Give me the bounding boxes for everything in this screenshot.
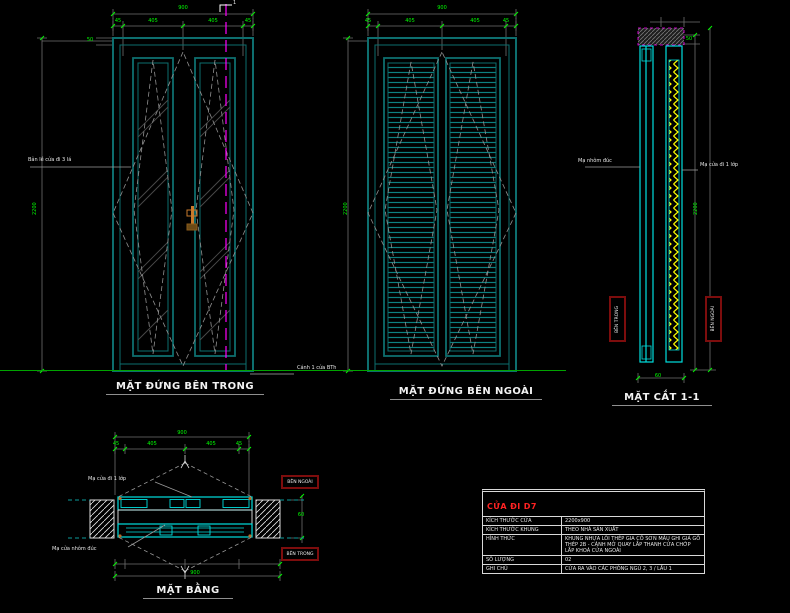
elevation-inside-linework: [0, 0, 320, 400]
dim-right: 45: [496, 18, 516, 24]
table-row: HÌNH THỨC KHUNG NHỰA LÕI THÉP GIA CỐ SƠN…: [483, 535, 704, 556]
frame-profile-left: [640, 46, 653, 362]
spec-value: KHUNG NHỰA LÕI THÉP GIA CỐ SƠN MÀU GHI G…: [562, 535, 704, 555]
spec-value: CỬA RA VÀO CÁC PHÒNG NGỦ 2, 3 / LẦU 1: [562, 565, 704, 573]
section-mark-number: 1: [233, 0, 236, 6]
dim-right: 45: [230, 441, 248, 447]
swing-lines: [118, 463, 252, 571]
dim-thickness: 60: [646, 373, 670, 379]
dim-height: 2200: [343, 191, 349, 215]
plan-label-inside: BÊN TRONG: [281, 547, 319, 561]
dim-right: 45: [238, 18, 258, 24]
plan-label-outside: BÊN NGOÀI: [281, 475, 319, 489]
door-spec-table: CỬA ĐI D7 KÍCH THƯỚC CỬA 2200x900 KÍCH T…: [482, 489, 705, 574]
elevation-outside-linework: [330, 0, 570, 400]
dim-leaf2: 405: [198, 18, 228, 24]
dim-height: 2200: [693, 191, 699, 215]
spec-table-title: CỬA ĐI D7: [487, 502, 537, 511]
dim-head: 50: [682, 36, 696, 42]
dimension-ticks: [40, 12, 255, 373]
dim-total-width: 900: [113, 5, 253, 11]
dim-left: 45: [358, 18, 378, 24]
wall-right: [256, 500, 280, 538]
plan-note-top: Mạ cửa đi 1 lớp: [88, 476, 126, 482]
dim-total-width: 900: [368, 5, 516, 11]
dim-left: 45: [108, 18, 128, 24]
spec-label: SỐ LƯỢNG: [483, 556, 562, 564]
title-elevation-inside: MẶT ĐỨNG BÊN TRONG: [106, 381, 264, 395]
dim-leaf1: 405: [138, 18, 168, 24]
louver-leaves: [384, 58, 500, 356]
swing-lines: [113, 52, 253, 366]
title-section: MẶT CẮT 1-1: [612, 392, 712, 406]
table-row: GHI CHÚ CỬA RA VÀO CÁC PHÒNG NGỦ 2, 3 / …: [483, 565, 704, 573]
dim-height: 2200: [32, 191, 38, 215]
glass-reflection-lines: [138, 100, 230, 340]
table-row: SỐ LƯỢNG 02: [483, 556, 704, 565]
table-row: KÍCH THƯỚC KHUNG THEO NHÀ SẢN XUẤT: [483, 526, 704, 535]
section-note-left: Mạ nhôm đúc: [578, 158, 612, 164]
door-slab: [118, 510, 252, 524]
hinge-marks: [118, 497, 251, 538]
table-row: KÍCH THƯỚC CỬA 2200x900: [483, 517, 704, 526]
door-leaves: [133, 58, 235, 356]
wall-left: [90, 500, 114, 538]
dim-left: 45: [107, 441, 125, 447]
door-frame: [113, 38, 253, 371]
lintel-hatch: [638, 28, 684, 45]
dim-leaf1: 405: [137, 441, 167, 447]
spec-value: 2200x900: [562, 517, 704, 525]
spec-value: THEO NHÀ SẢN XUẤT: [562, 526, 704, 534]
dim-total-width: 900: [115, 430, 249, 436]
spec-label: KÍCH THƯỚC KHUNG: [483, 526, 562, 534]
dim-thickness: 60: [293, 512, 309, 518]
ground-line: [0, 370, 566, 371]
section-linework: [560, 0, 790, 410]
dim-leaf2: 405: [460, 18, 490, 24]
side-label-outside: BÊN NGOÀI: [705, 296, 722, 342]
dim-head: 50: [84, 37, 96, 43]
side-label-inside: BÊN TRONG: [609, 296, 626, 342]
title-plan: MẶT BẰNG: [143, 585, 233, 599]
spec-label: GHI CHÚ: [483, 565, 562, 573]
plan-note-bottom: Mạ cửa nhôm đúc: [52, 546, 97, 552]
spec-label: HÌNH THỨC: [483, 535, 562, 555]
title-elevation-outside: MẶT ĐỨNG BÊN NGOÀI: [390, 386, 542, 400]
dim-leaf2: 405: [196, 441, 226, 447]
section-note-right: Mạ cửa đi 1 lớp: [700, 162, 738, 168]
spec-table-title-row: CỬA ĐI D7: [483, 492, 704, 517]
cad-drawing-sheet: 900 45 405 405 45 50 2200 Bản lề cửa đi …: [0, 0, 790, 613]
hinge-note: Bản lề cửa đi 3 lá: [28, 157, 71, 163]
dim-leaf1: 405: [395, 18, 425, 24]
frame-profile-right: [666, 46, 682, 362]
door-bottom-rail: [118, 524, 252, 537]
spec-label: KÍCH THƯỚC CỬA: [483, 517, 562, 525]
door-top-rail: [118, 497, 252, 510]
spec-value: 02: [562, 556, 704, 564]
dim-total-bottom: 900: [115, 570, 275, 576]
